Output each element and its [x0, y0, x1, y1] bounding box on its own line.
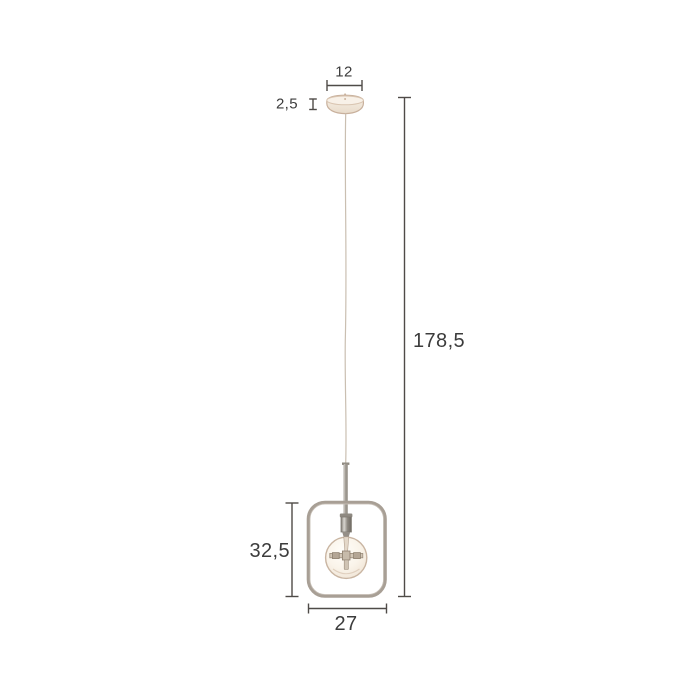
dim-label-frame-width: 27	[334, 614, 357, 634]
hanging-rod	[342, 463, 349, 520]
dim-line-canopy-height	[309, 99, 317, 110]
dim-line-frame-width	[309, 604, 387, 614]
dim-label-canopy-width: 12	[335, 65, 353, 80]
dim-label-canopy-height: 2,5	[276, 96, 298, 111]
ceiling-canopy	[327, 93, 364, 113]
bulb-socket	[340, 514, 353, 537]
dim-line-total-height	[398, 98, 411, 597]
suspension-cable	[345, 114, 346, 464]
dim-label-total-height: 178,5	[413, 331, 465, 351]
light-bulb	[326, 537, 367, 579]
dim-line-canopy-width	[327, 80, 362, 91]
diagram-canvas	[0, 0, 700, 700]
pendant-lamp-dimension-diagram: 12 2,5 178,5 32,5 27	[0, 0, 700, 700]
dim-label-frame-height: 32,5	[249, 541, 290, 561]
